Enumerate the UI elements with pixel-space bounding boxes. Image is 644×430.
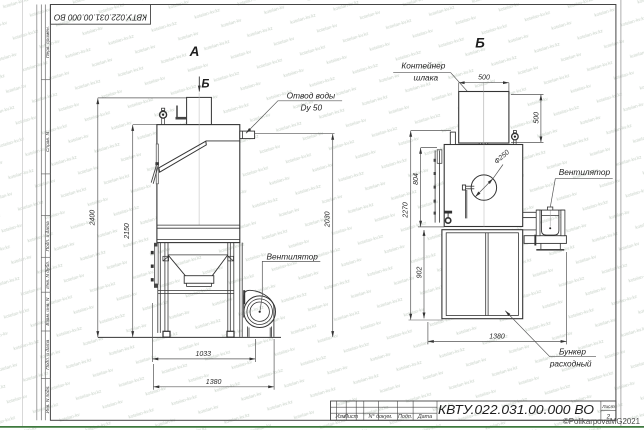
svg-text:Перв. примен.: Перв. примен. (45, 26, 51, 58)
svg-text:Вентилятор: Вентилятор (266, 251, 318, 261)
svg-text:500: 500 (533, 112, 540, 124)
svg-text:КВТУ.022.031.00.000 ВО: КВТУ.022.031.00.000 ВО (438, 402, 594, 417)
svg-text:КВТУ.022.031.00.000 ВО: КВТУ.022.031.00.000 ВО (53, 12, 147, 21)
svg-text:Отвод воды: Отвод воды (287, 90, 335, 100)
svg-text:А: А (189, 44, 200, 59)
svg-text:Инв. N подл.: Инв. N подл. (45, 385, 51, 413)
svg-text:Дата: Дата (417, 414, 432, 420)
svg-text:шлака: шлака (413, 73, 438, 83)
svg-text:Подп. и дата: Подп. и дата (45, 221, 51, 251)
svg-text:Dy 50: Dy 50 (300, 102, 322, 112)
svg-text:1380: 1380 (489, 333, 505, 340)
svg-text:Бункер: Бункер (559, 346, 586, 356)
svg-text:Подп. и дата: Подп. и дата (45, 339, 51, 369)
svg-text:Б: Б (201, 79, 209, 91)
svg-text:N° докум.: N° докум. (369, 414, 393, 420)
svg-text:2030: 2030 (324, 211, 331, 228)
svg-text:Вентилятор: Вентилятор (559, 167, 611, 177)
svg-text:902: 902 (416, 267, 423, 279)
svg-text:500: 500 (478, 75, 490, 82)
svg-text:Взам. инв. N: Взам. инв. N (45, 297, 51, 325)
svg-text:расходный: расходный (549, 358, 592, 368)
svg-text:Инв. N дубл.: Инв. N дубл. (45, 261, 51, 289)
svg-text:Подп.: Подп. (398, 414, 412, 420)
svg-text:1033: 1033 (196, 351, 212, 358)
svg-text:Справ. N: Справ. N (45, 131, 51, 152)
svg-text:Лист: Лист (601, 404, 615, 410)
svg-text:Лист: Лист (343, 414, 358, 420)
svg-text:Контейнер: Контейнер (401, 61, 445, 71)
svg-text:Б: Б (475, 36, 485, 51)
svg-text:2150: 2150 (124, 223, 131, 240)
svg-text:2270: 2270 (402, 202, 409, 219)
svg-text:2400: 2400 (90, 210, 97, 227)
svg-text:©PolikarpovaMG2021: ©PolikarpovaMG2021 (563, 417, 640, 426)
svg-text:1380: 1380 (206, 379, 222, 386)
svg-text:804: 804 (413, 173, 420, 185)
